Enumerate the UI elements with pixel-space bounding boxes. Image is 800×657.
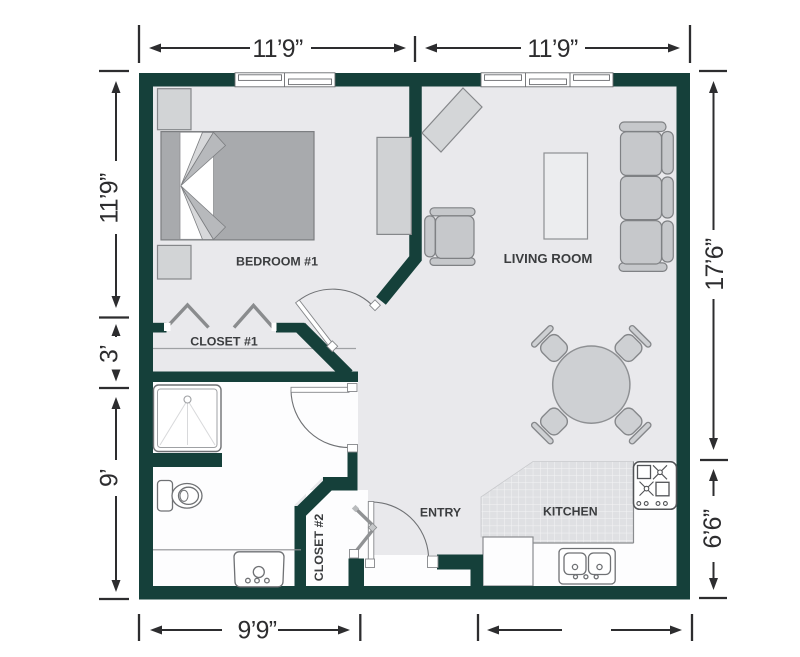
svg-text:3’: 3’: [97, 345, 124, 363]
svg-text:11’9”: 11’9”: [527, 36, 578, 63]
svg-text:CLOSET #1: CLOSET #1: [190, 335, 258, 349]
svg-text:11’9”: 11’9”: [97, 173, 124, 224]
svg-text:17’6”: 17’6”: [702, 238, 729, 290]
svg-text:KITCHEN: KITCHEN: [543, 505, 598, 519]
svg-text:11’9”: 11’9”: [252, 36, 303, 63]
svg-text:6’6”: 6’6”: [700, 509, 727, 548]
svg-text:9’9”: 9’9”: [238, 618, 277, 645]
svg-text:LIVING ROOM: LIVING ROOM: [504, 251, 593, 266]
svg-text:9’: 9’: [97, 469, 124, 487]
svg-text:BEDROOM #1: BEDROOM #1: [236, 255, 318, 269]
svg-text:ENTRY: ENTRY: [420, 506, 461, 520]
svg-text:CLOSET #2: CLOSET #2: [312, 514, 326, 582]
